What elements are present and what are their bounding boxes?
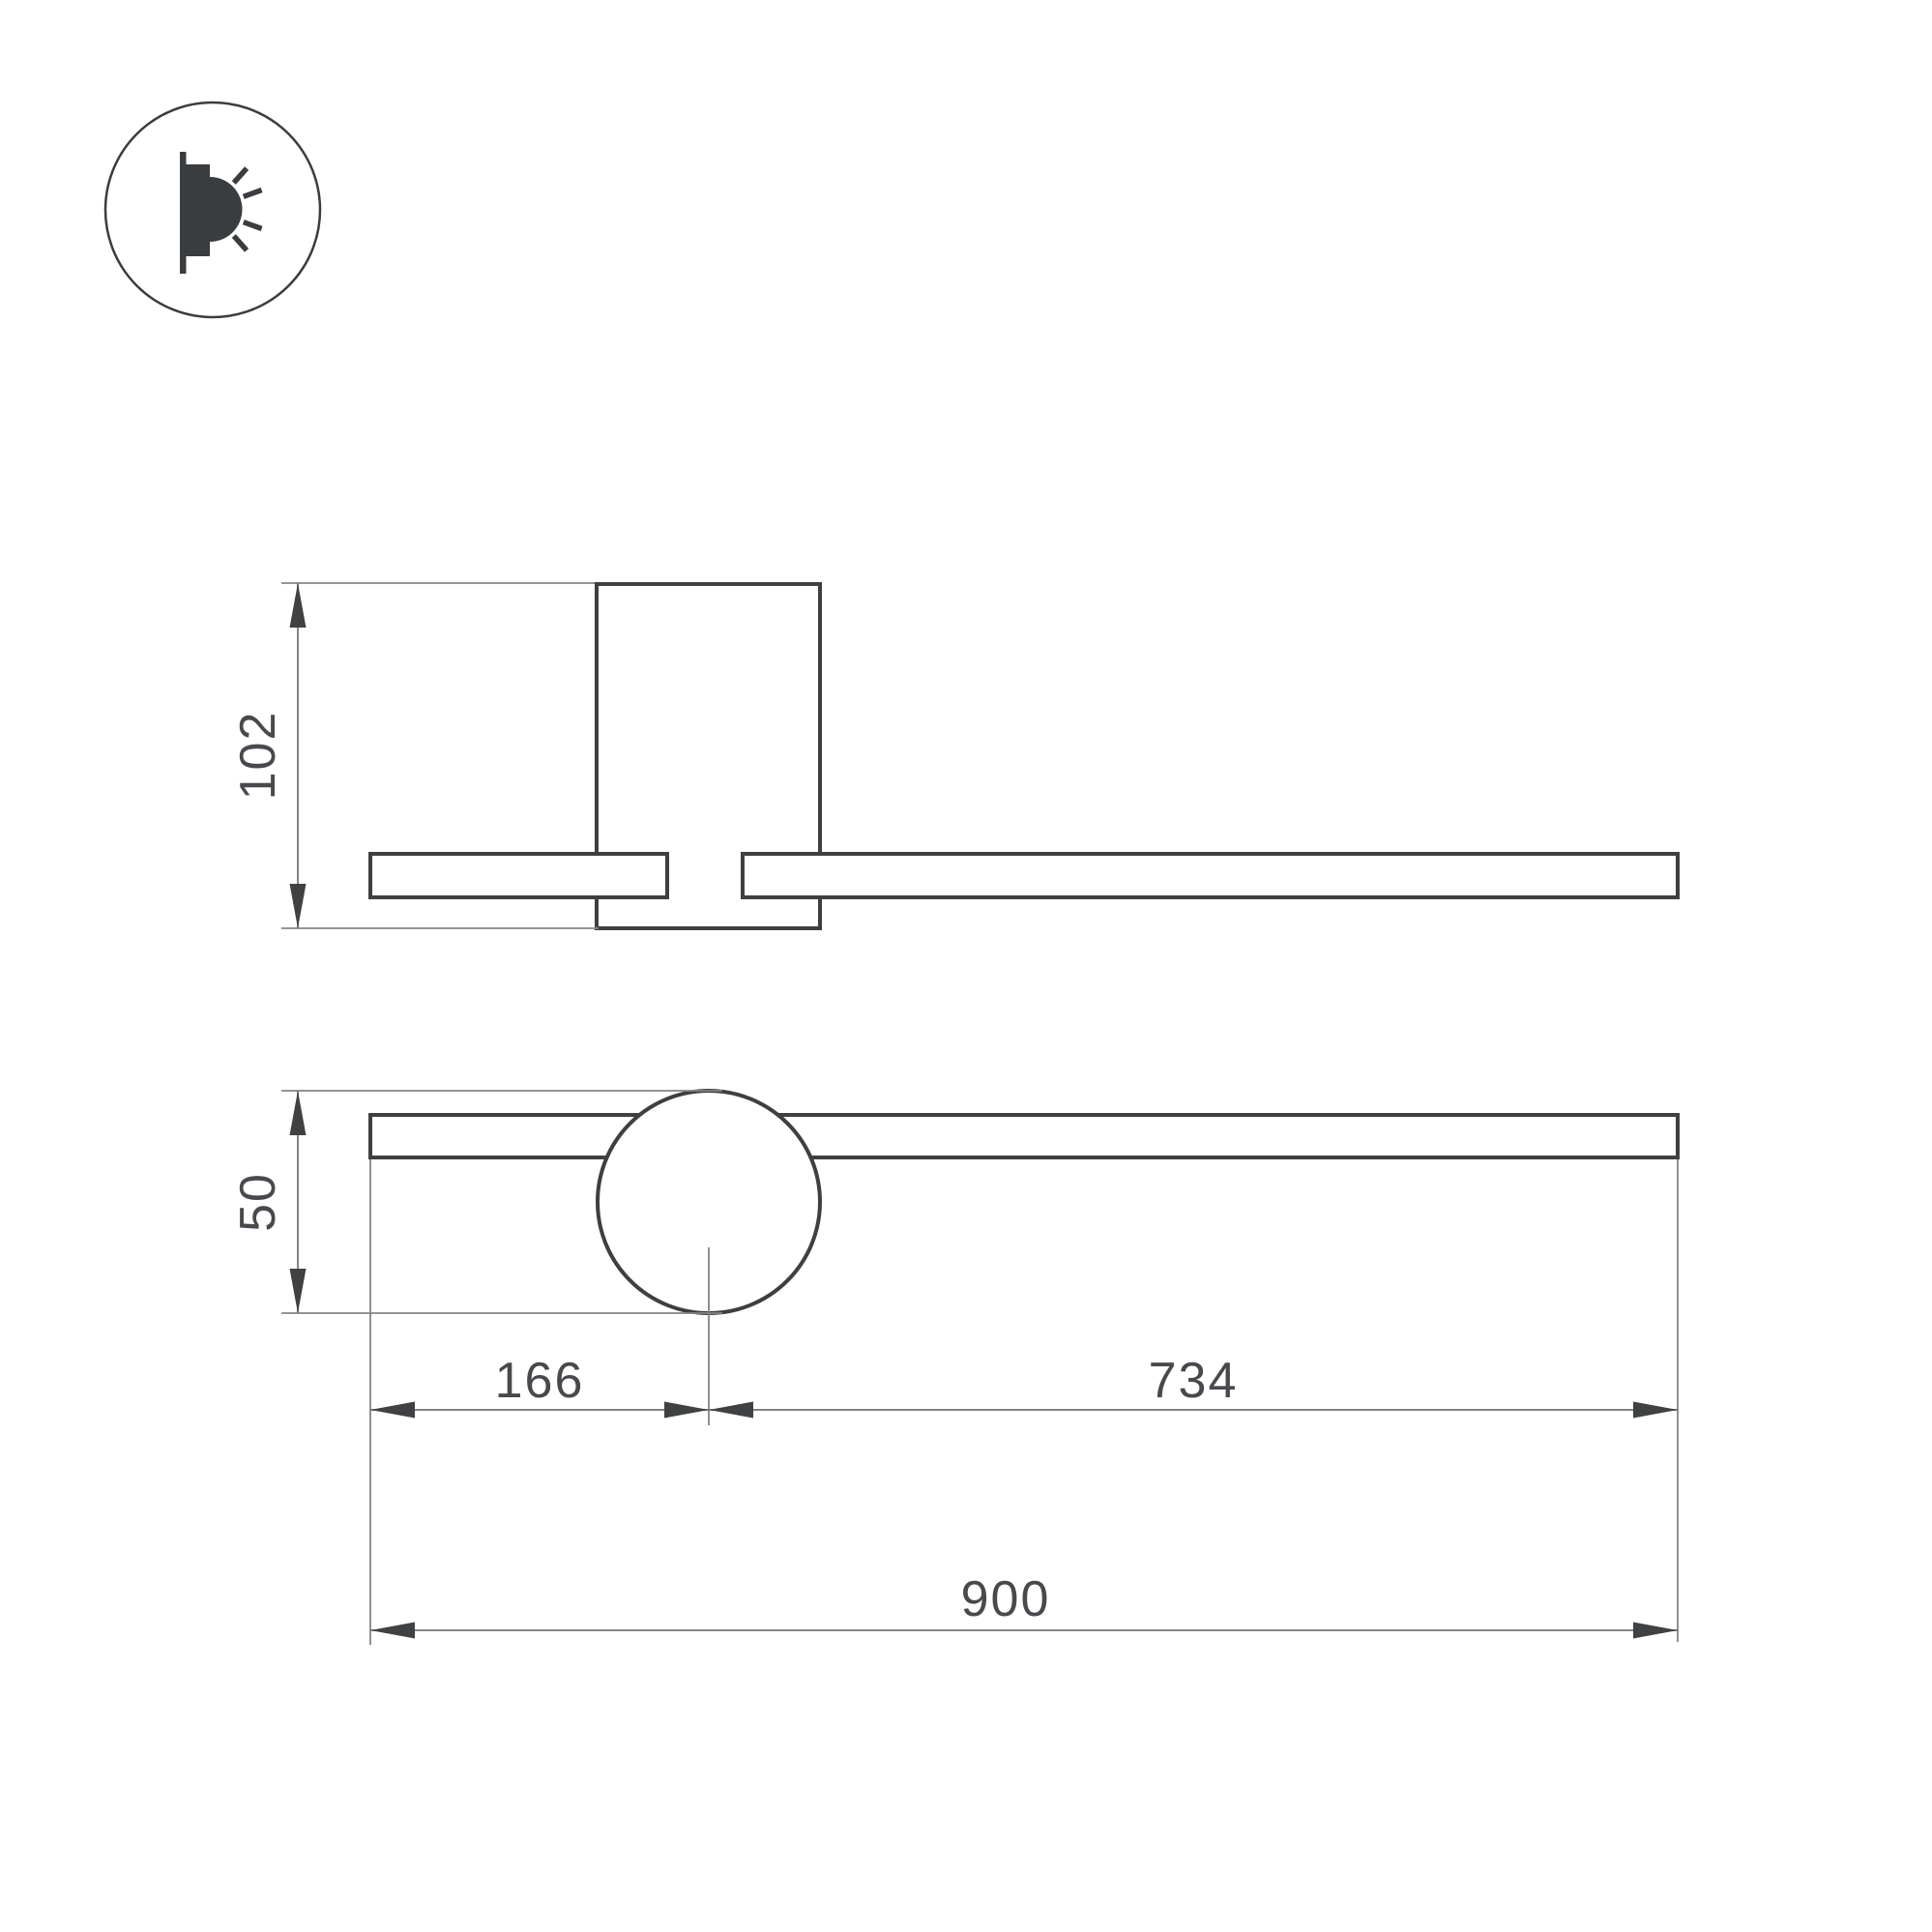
wall-light-icon bbox=[105, 102, 320, 317]
dimension-734: 734 bbox=[709, 1353, 1678, 1419]
arrowhead-down-icon bbox=[290, 884, 307, 928]
left-arm-outline bbox=[370, 854, 667, 897]
dimension-166: 166 bbox=[370, 1353, 709, 1419]
dimension-label: 734 bbox=[1149, 1353, 1239, 1409]
dimension-label: 166 bbox=[495, 1353, 585, 1409]
dimension-label: 900 bbox=[961, 1571, 1051, 1627]
dimension-label: 102 bbox=[230, 711, 286, 801]
arrowhead-up-icon bbox=[290, 583, 307, 628]
dimension-900: 900 bbox=[370, 1571, 1678, 1639]
arrowhead-right-icon bbox=[1633, 1402, 1678, 1419]
front-view: 50 166 734 900 bbox=[230, 1091, 1678, 1645]
arrowhead-right-icon bbox=[664, 1402, 709, 1419]
wall-line-icon bbox=[180, 152, 187, 274]
right-arm-outline bbox=[743, 854, 1678, 897]
arrowhead-left-icon bbox=[709, 1402, 753, 1419]
arrowhead-up-icon bbox=[290, 1091, 307, 1135]
arrowhead-left-icon bbox=[370, 1402, 415, 1419]
arm-outline bbox=[370, 1115, 1678, 1157]
lamp-body-icon bbox=[187, 164, 211, 256]
arrowhead-left-icon bbox=[370, 1623, 415, 1639]
arrowhead-down-icon bbox=[290, 1269, 307, 1313]
arrowhead-right-icon bbox=[1633, 1623, 1678, 1639]
dimension-label: 50 bbox=[230, 1172, 286, 1232]
side-view: 102 bbox=[230, 583, 1678, 928]
technical-drawing-canvas: 102 50 166 734 bbox=[0, 0, 1932, 1932]
